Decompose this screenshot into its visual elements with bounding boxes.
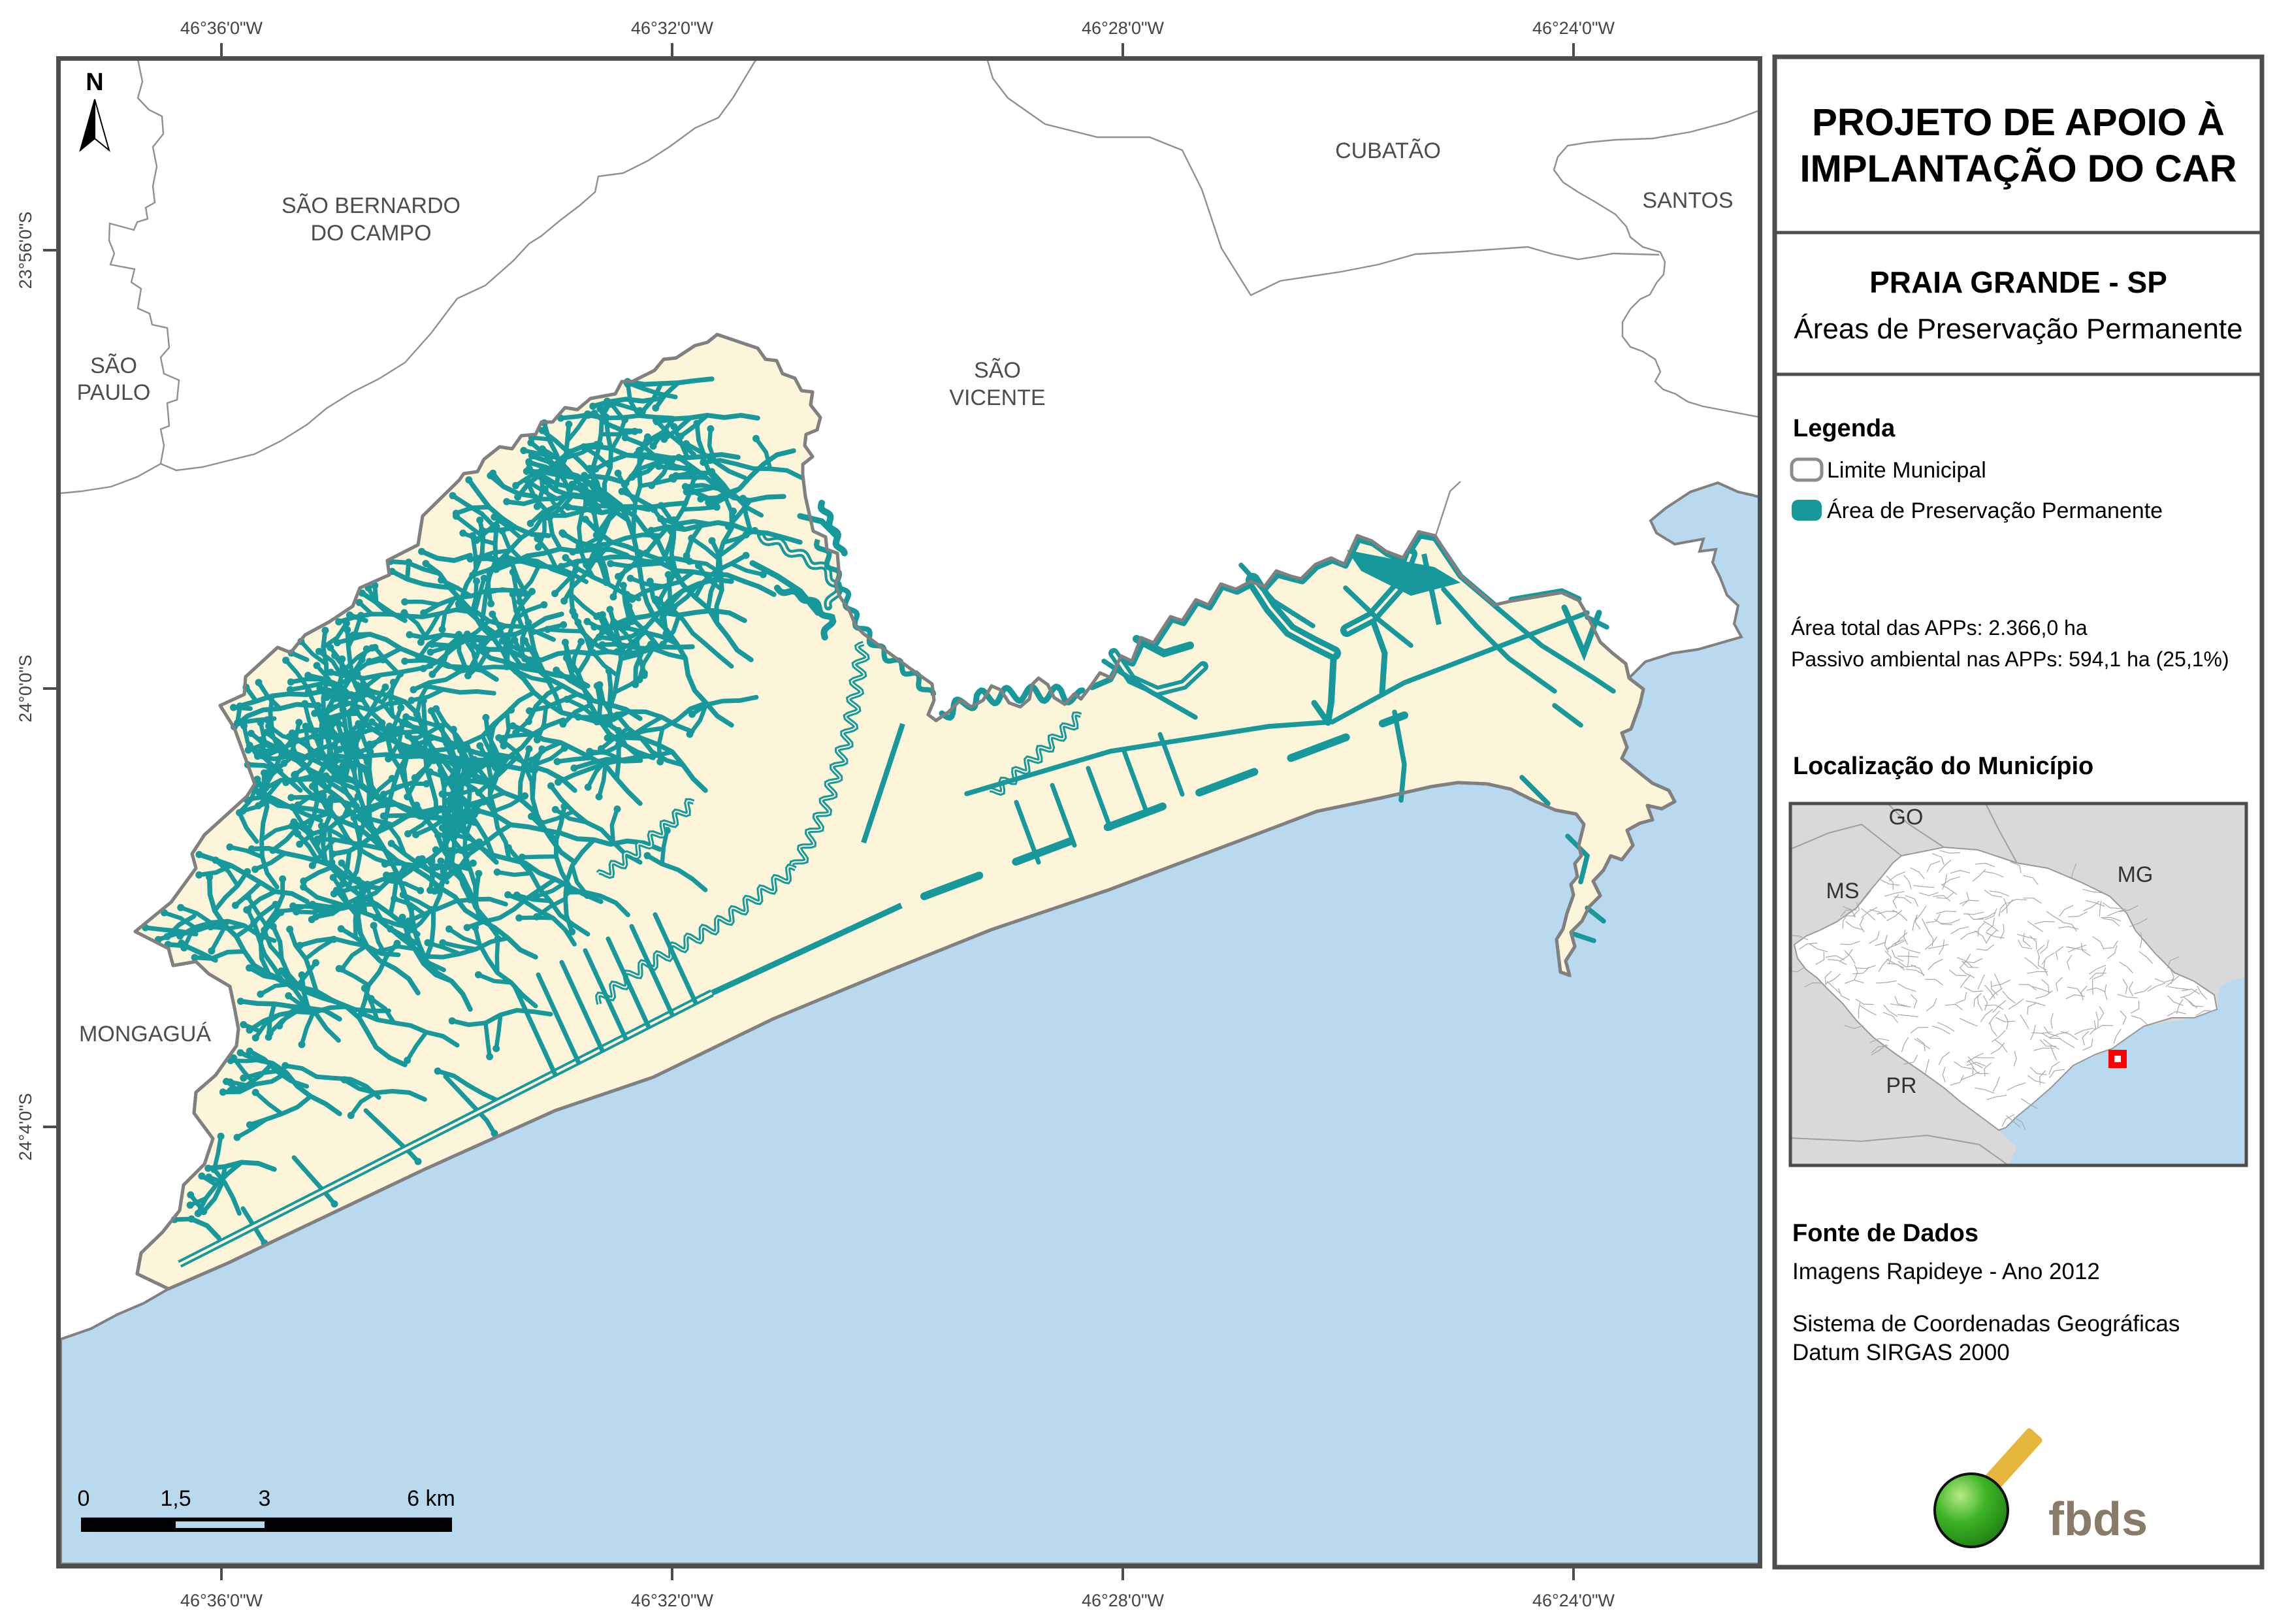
svg-text:Localização do Município: Localização do Município — [1793, 753, 2093, 780]
svg-text:Passivo ambiental nas APPs: 59: Passivo ambiental nas APPs: 594,1 ha (25… — [1791, 647, 2229, 671]
svg-text:IMPLANTAÇÃO DO CAR: IMPLANTAÇÃO DO CAR — [1800, 148, 2236, 190]
svg-text:SÃO: SÃO — [90, 353, 137, 378]
svg-text:Limite Municipal: Limite Municipal — [1827, 458, 1986, 483]
svg-text:24°4'0"S: 24°4'0"S — [16, 1093, 35, 1161]
svg-text:MG: MG — [2118, 862, 2154, 887]
svg-text:6 km: 6 km — [407, 1486, 455, 1511]
svg-text:3: 3 — [259, 1486, 271, 1511]
svg-text:MONGAGUÁ: MONGAGUÁ — [79, 1022, 211, 1047]
svg-text:46°28'0"W: 46°28'0"W — [1082, 1591, 1165, 1610]
svg-text:46°32'0"W: 46°32'0"W — [631, 18, 714, 38]
svg-text:46°36'0"W: 46°36'0"W — [180, 18, 263, 38]
svg-text:VICENTE: VICENTE — [949, 385, 1045, 410]
svg-text:24°0'0"S: 24°0'0"S — [16, 655, 35, 723]
svg-text:PAULO: PAULO — [77, 380, 151, 405]
svg-text:Sistema de Coordenadas Geográf: Sistema de Coordenadas Geográficas — [1792, 1311, 2180, 1337]
svg-text:23°56'0"S: 23°56'0"S — [16, 212, 35, 289]
svg-text:46°24'0"W: 46°24'0"W — [1532, 18, 1615, 38]
svg-text:46°32'0"W: 46°32'0"W — [631, 1591, 714, 1610]
svg-text:Imagens Rapideye - Ano 2012: Imagens Rapideye - Ano 2012 — [1792, 1259, 2100, 1284]
svg-text:N: N — [86, 69, 103, 96]
svg-text:PR: PR — [1886, 1073, 1916, 1098]
svg-text:Datum SIRGAS 2000: Datum SIRGAS 2000 — [1792, 1340, 2010, 1365]
svg-text:1,5: 1,5 — [160, 1486, 191, 1511]
svg-text:Fonte de Dados: Fonte de Dados — [1792, 1220, 1978, 1247]
svg-text:SÃO: SÃO — [974, 358, 1021, 383]
svg-text:Legenda: Legenda — [1793, 415, 1896, 442]
svg-text:CUBATÃO: CUBATÃO — [1335, 138, 1441, 163]
svg-text:SANTOS: SANTOS — [1642, 188, 1733, 213]
svg-text:DO CAMPO: DO CAMPO — [310, 221, 431, 246]
svg-text:0: 0 — [78, 1486, 90, 1511]
svg-text:Área total das APPs: 2.366,0 h: Área total das APPs: 2.366,0 ha — [1791, 616, 2088, 640]
svg-text:GO: GO — [1889, 805, 1924, 830]
svg-text:fbds: fbds — [2048, 1493, 2148, 1546]
svg-text:46°28'0"W: 46°28'0"W — [1082, 18, 1165, 38]
svg-text:PRAIA GRANDE - SP: PRAIA GRANDE - SP — [1869, 265, 2167, 299]
svg-text:46°36'0"W: 46°36'0"W — [180, 1591, 263, 1610]
svg-text:46°24'0"W: 46°24'0"W — [1532, 1591, 1615, 1610]
svg-text:MS: MS — [1826, 879, 1860, 903]
svg-text:SÃO BERNARDO: SÃO BERNARDO — [282, 193, 460, 218]
svg-text:Área de Preservação Permanente: Área de Preservação Permanente — [1827, 498, 2163, 523]
svg-text:Áreas de Preservação Permanent: Áreas de Preservação Permanente — [1794, 313, 2242, 345]
svg-text:PROJETO DE APOIO À: PROJETO DE APOIO À — [1812, 101, 2225, 144]
